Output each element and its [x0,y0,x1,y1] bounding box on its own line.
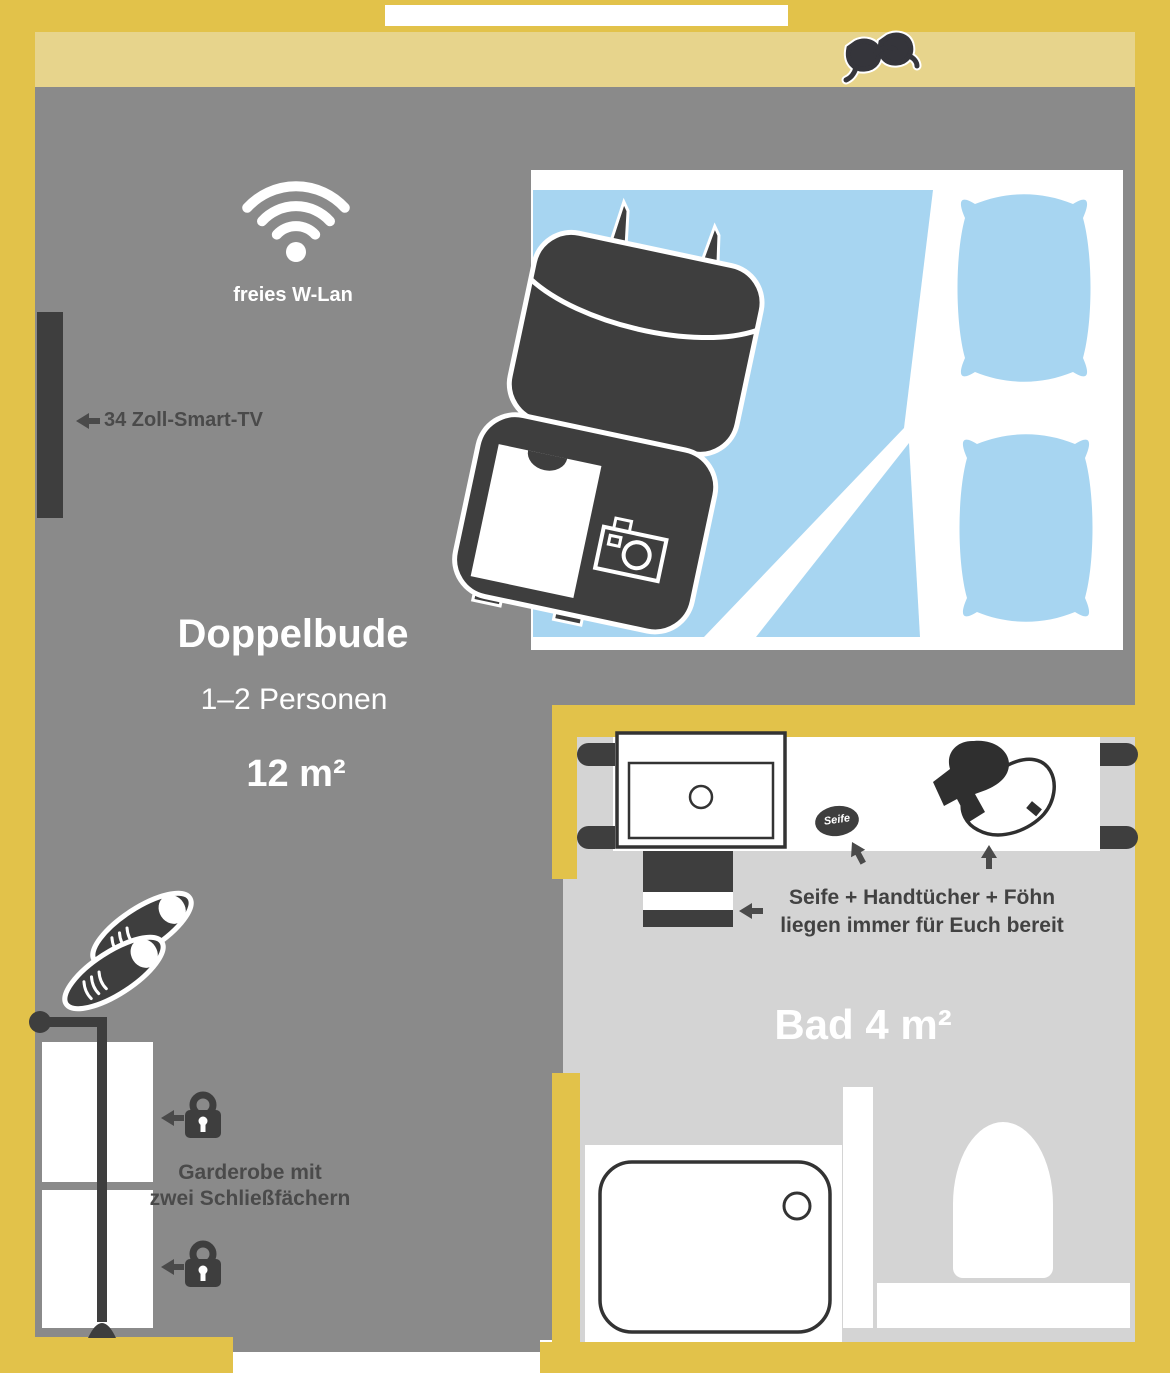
wifi-label: freies W-Lan [193,284,393,307]
bathroom-partition-wall [843,1087,873,1328]
bathroom-wall-top [552,705,1135,737]
bathroom-name: Bad 4 m² [713,1001,1013,1049]
counter-bracket [1100,826,1138,849]
counter-bracket [577,743,615,766]
room-area: 12 m² [146,753,446,796]
top-window-opening [385,5,788,26]
bathroom-wall-left-upper [552,705,577,879]
towel-stack-icon [643,851,733,892]
wardrobe-label-line2: zwei Schließfächern [110,1186,390,1212]
wardrobe-label-line1: Garderobe mit [110,1160,390,1186]
bathroom-wall-left-lower [552,1073,580,1373]
shower-area [585,1145,842,1342]
toilet-icon [953,1122,1053,1278]
counter-bracket [577,826,615,849]
counter-bracket [1100,743,1138,766]
wall-bottom-left [0,1337,233,1373]
amenities-line2: liegen immer für Euch bereit [772,912,1072,940]
towel-stack-icon [643,910,733,927]
wall-left [0,0,35,1373]
toilet-cistern [877,1283,1130,1328]
smart-tv [37,312,63,518]
amenities-line1: Seife + Handtücher + Föhn [772,884,1072,912]
bathroom-wall-bottom [540,1342,1170,1373]
door-threshold [233,1340,540,1352]
room-name: Doppelbude [143,612,443,657]
bathroom-counter [613,737,1100,851]
bed [531,170,1123,650]
towel-stack-stripe [643,892,733,910]
window-sill-band [35,32,1137,87]
floor-plan: freies W-Lan 34 Zoll-Smart-TV Doppelbude… [0,0,1170,1373]
tv-label: 34 Zoll-Smart-TV [104,409,263,432]
wall-right [1135,0,1170,1373]
room-capacity: 1–2 Personen [144,683,444,717]
